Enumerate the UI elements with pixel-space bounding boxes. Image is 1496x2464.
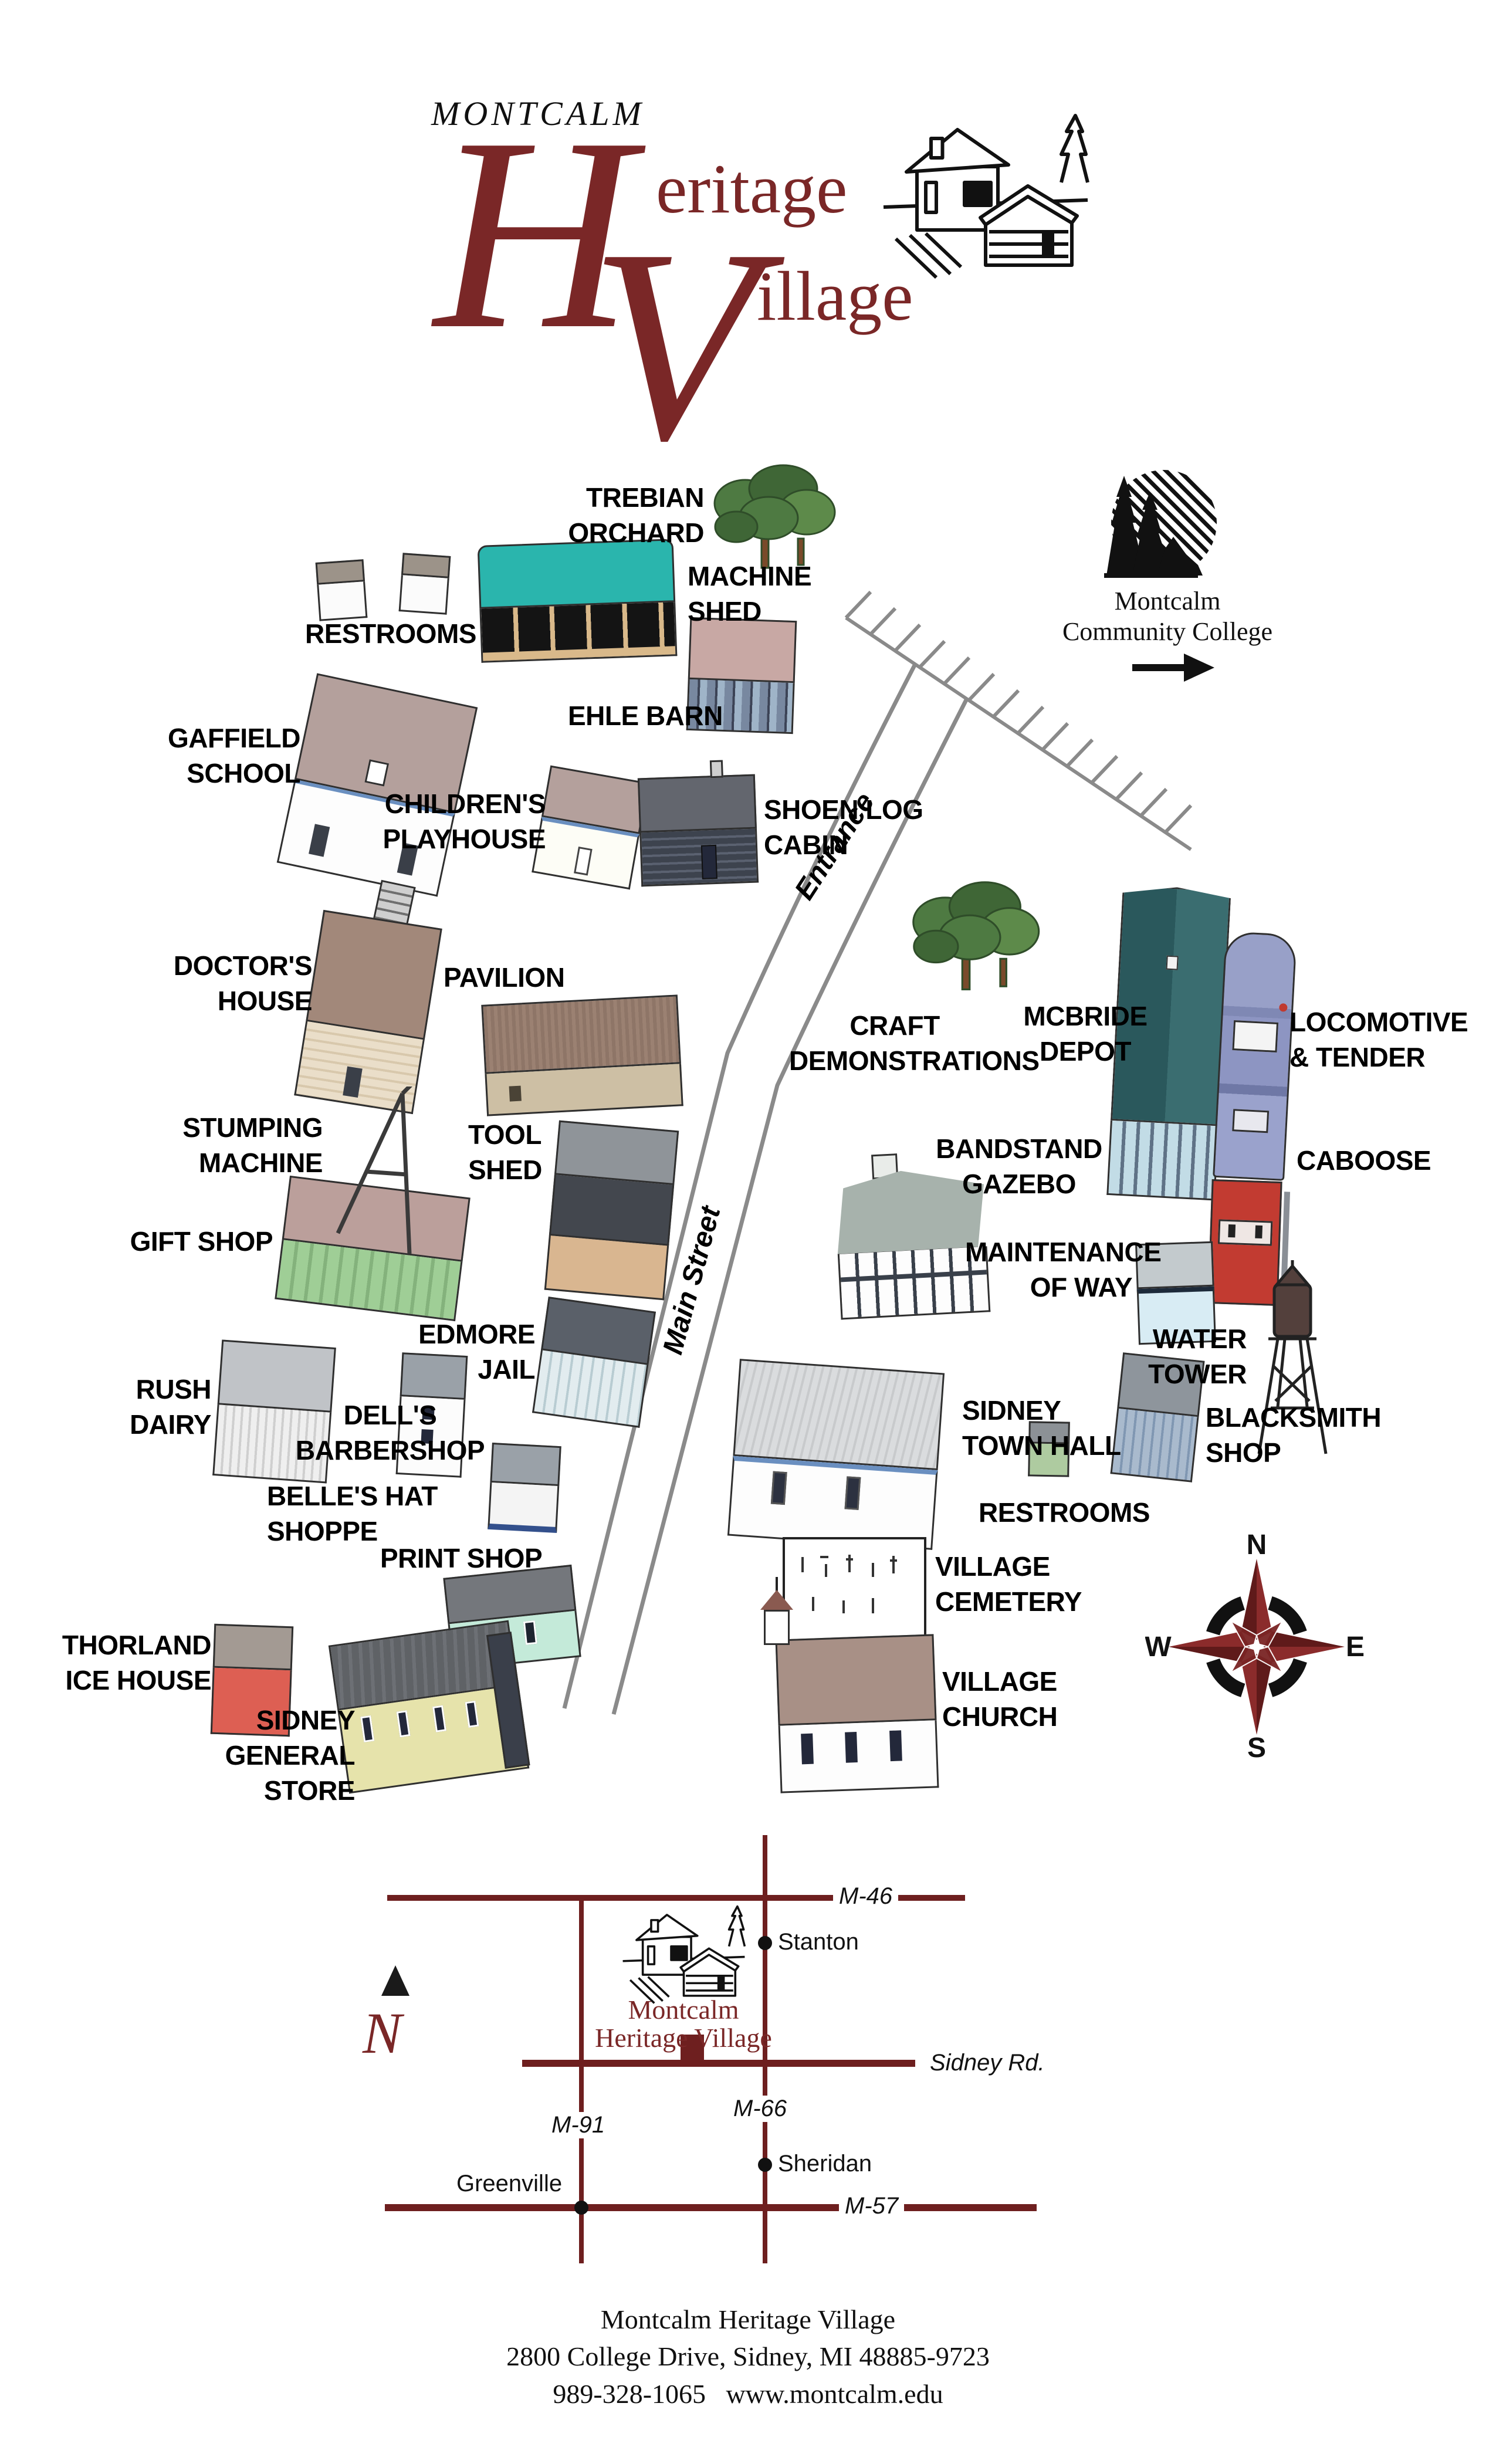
inset-m57-label: M-57	[839, 2193, 904, 2219]
label-childrens-playhouse: CHILDREN'SPLAYHOUSE	[364, 786, 546, 857]
label-ehle-barn: EHLE BARN	[568, 698, 732, 733]
label-gift-shop: GIFT SHOP	[129, 1224, 273, 1259]
label-restrooms-nw: RESTROOMS	[305, 616, 469, 651]
craft-area-trees-icon	[902, 879, 1043, 1002]
label-maintenance-of-way: MAINTENANCEOF WAY	[965, 1234, 1132, 1305]
logo-house-sketch-icon	[880, 109, 1091, 285]
sidney-town-hall-building	[727, 1359, 945, 1550]
college-name-line2: Community College	[1050, 617, 1285, 647]
heritage-village-map-page: { "logo": { "kicker": "MONTCALM", "herit…	[0, 0, 1496, 2464]
label-blacksmith-shop: BLACKSMITHSHOP	[1206, 1400, 1382, 1470]
label-doctors-house: DOCTOR'SHOUSE	[153, 948, 312, 1018]
label-rush-dairy: RUSHDAIRY	[94, 1372, 211, 1442]
label-print-shop: PRINT SHOP	[380, 1541, 544, 1576]
pavilion-building	[481, 994, 683, 1116]
inset-village-house-icon	[621, 1902, 747, 2008]
label-mcbride-depot: MCBRIDEDEPOT	[997, 999, 1173, 1069]
logo-village-initial: V	[590, 235, 758, 455]
label-belles-hat-shoppe: BELLE'S HAT SHOPPE	[267, 1478, 513, 1549]
inset-m66-label: M-66	[727, 2096, 793, 2122]
inset-sidney-rd-label: Sidney Rd.	[924, 2050, 1051, 2076]
label-trebian-orchard: TREBIANORCHARD	[505, 480, 704, 550]
edmore-jail-building	[532, 1297, 656, 1428]
label-thorland-ice-house: THORLANDICE HOUSE	[62, 1627, 211, 1698]
locomotive-tender-icon	[1213, 931, 1297, 1181]
college-name-line1: Montcalm	[1074, 587, 1261, 617]
label-machine-shed: MACHINESHED	[688, 559, 875, 629]
inset-village-name-line1: Montcalm	[595, 1993, 771, 2026]
footer-block: Montcalm Heritage Village 2800 College D…	[0, 2301, 1496, 2412]
church-steeple-icon	[760, 1577, 793, 1647]
inset-m46-label: M-46	[833, 1883, 898, 1910]
stumping-machine-icon	[321, 1087, 439, 1260]
inset-greenville-label: Greenville	[456, 2171, 562, 2197]
label-pavilion: PAVILION	[444, 960, 596, 995]
label-restrooms-se: RESTROOMS	[979, 1495, 1131, 1530]
outhouse-icon	[316, 559, 368, 621]
label-dells-barbershop: DELL'SBARBERSHOP	[293, 1397, 487, 1468]
label-village-church: VILLAGECHURCH	[942, 1664, 1095, 1734]
compass-w-label: W	[1145, 1632, 1172, 1663]
childrens-playhouse-building	[532, 766, 649, 890]
compass-s-label: S	[1247, 1732, 1266, 1761]
label-water-tower: WATERTOWER	[1109, 1321, 1247, 1392]
label-edmore-jail: EDMOREJAIL	[411, 1316, 535, 1387]
outhouse-icon	[399, 553, 451, 614]
footer-address: 2800 College Drive, Sidney, MI 48885-972…	[0, 2338, 1496, 2375]
compass-rose-icon: N E S W	[1145, 1532, 1368, 1761]
machine-shed-building	[478, 539, 678, 663]
label-craft-demonstrations: CRAFTDEMONSTRATIONS	[789, 1008, 1000, 1078]
label-village-cemetery: VILLAGECEMETERY	[935, 1549, 1099, 1619]
college-logo-icon	[1098, 466, 1224, 587]
shoen-log-cabin-building	[638, 774, 759, 887]
inset-village-name-line2: Heritage Village	[566, 2022, 801, 2054]
inset-north-arrow-icon	[381, 1965, 409, 1996]
sidney-general-store-building	[329, 1620, 529, 1794]
label-locomotive-tender: LOCOMOTIVE& TENDER	[1289, 1004, 1489, 1075]
label-stumping-machine: STUMPINGMACHINE	[176, 1110, 323, 1180]
label-bandstand-gazebo: BANDSTANDGAZEBO	[922, 1131, 1116, 1201]
label-caboose: CABOOSE	[1297, 1143, 1449, 1178]
inset-m91-label: M-91	[546, 2112, 611, 2138]
footer-name: Montcalm Heritage Village	[0, 2301, 1496, 2338]
village-cemetery-area	[783, 1537, 926, 1643]
label-gaffield-school: GAFFIELDSCHOOL	[141, 720, 300, 791]
college-direction-arrow-icon	[1132, 650, 1214, 685]
footer-phone-web: 989-328-1065 www.montcalm.edu	[0, 2375, 1496, 2412]
inset-sheridan-label: Sheridan	[778, 2151, 872, 2177]
label-tool-shed: TOOLSHED	[468, 1117, 597, 1187]
compass-n-label: N	[1247, 1532, 1267, 1561]
label-sidney-town-hall: SIDNEYTOWN HALL	[962, 1393, 1150, 1463]
compass-e-label: E	[1346, 1632, 1365, 1663]
village-church-building	[776, 1634, 939, 1793]
inset-north-label: N	[363, 1999, 402, 2067]
inset-stanton-label: Stanton	[778, 1929, 859, 1955]
label-sidney-general-store: SIDNEYGENERAL STORE	[167, 1703, 355, 1808]
